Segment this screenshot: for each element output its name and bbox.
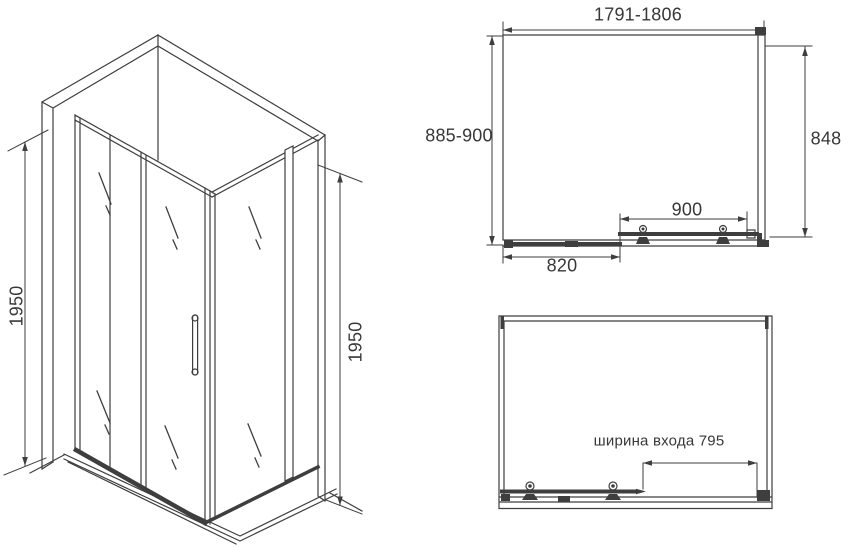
arrow-down bbox=[22, 457, 28, 466]
arrow-up bbox=[337, 174, 343, 183]
left-end-bracket bbox=[501, 494, 510, 501]
rail-clip bbox=[558, 496, 570, 502]
iso-base-tray bbox=[30, 450, 362, 544]
side-panel-wall-profile bbox=[285, 146, 293, 481]
plan-width-label: 1791-1806 bbox=[594, 5, 682, 26]
door-slide-arrow bbox=[636, 489, 646, 495]
iso-height-left-label: 1950 bbox=[7, 286, 28, 327]
iso-height-right-label: 1950 bbox=[346, 322, 367, 363]
wall-profile-tick-left bbox=[501, 316, 505, 329]
plan-door-width-label: 900 bbox=[672, 200, 703, 221]
iso-enclosure-frame bbox=[75, 115, 318, 524]
corner-bracket bbox=[757, 490, 770, 501]
panel-clip bbox=[565, 241, 578, 247]
iso-walls bbox=[42, 35, 325, 501]
glass-reflection-marks bbox=[97, 173, 261, 469]
plan-dimensions bbox=[487, 21, 812, 263]
entry-view bbox=[499, 316, 772, 509]
entry-door-rail bbox=[501, 482, 770, 502]
shower-enclosure-technical-drawing: 1950 1950 1791-1806 885-900 848 900 820 … bbox=[0, 0, 849, 547]
entry-dimension bbox=[643, 460, 757, 496]
drawing-linework bbox=[0, 0, 849, 547]
plan-fixed-panel-label: 820 bbox=[547, 256, 578, 277]
left-end-bracket bbox=[504, 240, 513, 248]
plan-side-width-label: 848 bbox=[811, 129, 842, 150]
plan-bottom-rail bbox=[504, 226, 769, 249]
plan-view bbox=[487, 21, 812, 263]
wall-profile-tick-right bbox=[765, 316, 769, 329]
entry-outline bbox=[499, 316, 772, 509]
entry-width-label: ширина входа 795 bbox=[594, 433, 725, 450]
iso-view bbox=[4, 35, 362, 544]
corner-bracket bbox=[757, 233, 769, 247]
door-handle bbox=[192, 315, 198, 375]
plan-outline bbox=[503, 27, 766, 246]
plan-depth-label: 885-900 bbox=[425, 126, 492, 147]
